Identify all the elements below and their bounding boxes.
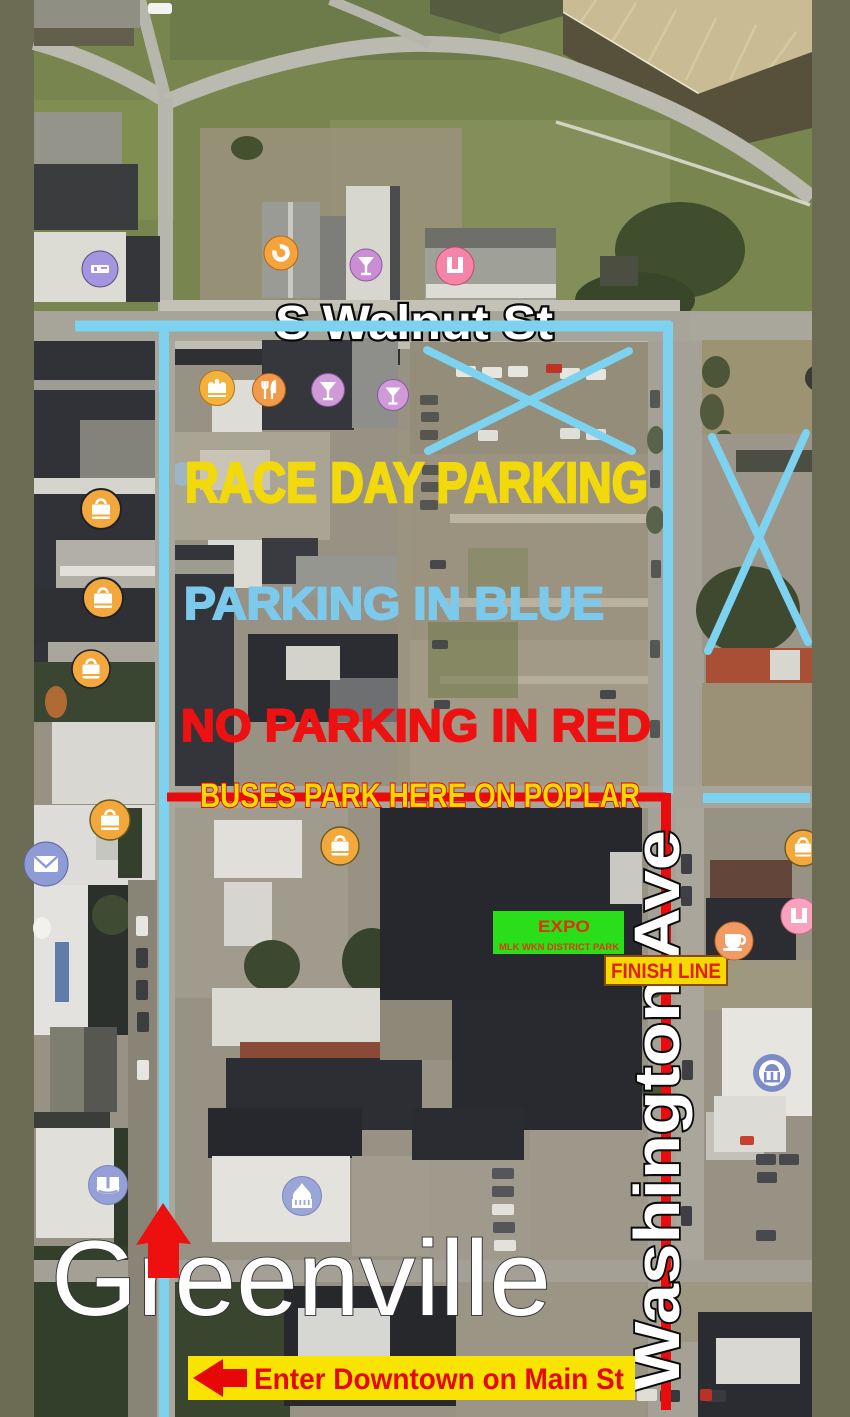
svg-text:Greenville: Greenville: [51, 1218, 551, 1338]
svg-text:Enter Downtown on Main St: Enter Downtown on Main St: [254, 1363, 624, 1396]
svg-text:MLK WKN DISTRICT PARK: MLK WKN DISTRICT PARK: [499, 942, 619, 953]
svg-text:PARKING IN BLUE: PARKING IN BLUE: [184, 578, 604, 629]
svg-text:EXPO: EXPO: [538, 917, 590, 936]
svg-text:BUSES PARK HERE ON POPLAR: BUSES PARK HERE ON POPLAR: [200, 777, 640, 815]
svg-text:RACE DAY PARKING: RACE DAY PARKING: [185, 451, 648, 515]
svg-text:NO PARKING IN RED: NO PARKING IN RED: [181, 700, 651, 751]
svg-text:FINISH LINE: FINISH LINE: [611, 960, 721, 983]
svg-text:Washington Ave: Washington Ave: [621, 830, 693, 1390]
